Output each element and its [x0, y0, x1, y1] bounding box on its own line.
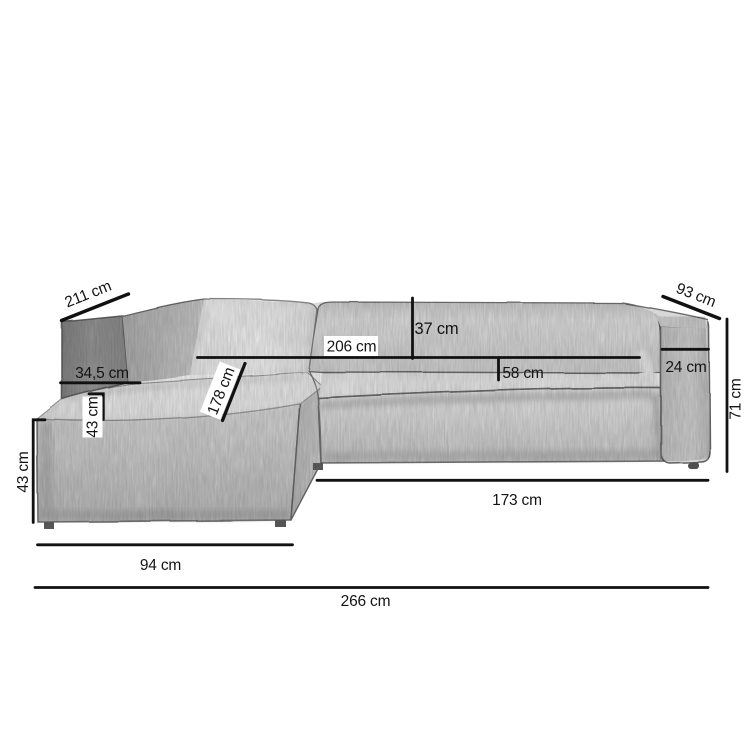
svg-text:24 cm: 24 cm	[665, 359, 706, 376]
svg-text:37 cm: 37 cm	[415, 320, 459, 338]
svg-text:34,5 cm: 34,5 cm	[75, 365, 129, 382]
svg-text:211 cm: 211 cm	[63, 278, 114, 312]
svg-text:93 cm: 93 cm	[674, 280, 719, 311]
svg-text:94 cm: 94 cm	[140, 557, 181, 574]
svg-text:43 cm: 43 cm	[15, 451, 32, 492]
svg-text:173 cm: 173 cm	[492, 492, 542, 509]
svg-text:71 cm: 71 cm	[728, 378, 745, 419]
svg-text:206 cm: 206 cm	[327, 339, 377, 356]
svg-text:43 cm: 43 cm	[85, 396, 102, 437]
svg-text:58 cm: 58 cm	[502, 365, 543, 382]
svg-text:266 cm: 266 cm	[341, 593, 391, 610]
